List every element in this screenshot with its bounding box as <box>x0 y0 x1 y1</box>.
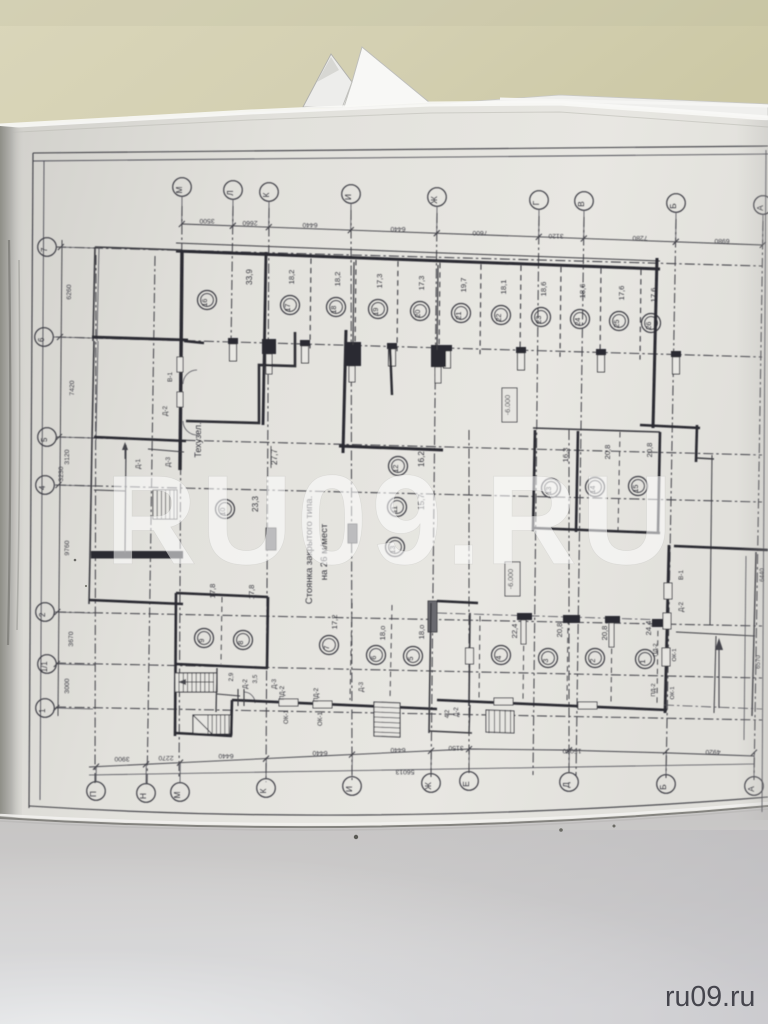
svg-text:Д-2: Д-2 <box>162 406 169 416</box>
svg-text:17,6: 17,6 <box>617 286 626 301</box>
svg-text:Ж: Ж <box>424 782 433 790</box>
svg-text:17: 17 <box>283 304 292 312</box>
svg-text:Б: Б <box>669 203 678 208</box>
svg-text:6440: 6440 <box>302 221 317 228</box>
svg-text:2: 2 <box>588 659 597 663</box>
svg-text:4: 4 <box>494 656 503 660</box>
svg-text:6440: 6440 <box>390 746 405 753</box>
svg-text:9760: 9760 <box>64 540 71 555</box>
svg-text:Д-2: Д-2 <box>242 679 249 689</box>
svg-text:ОК-1: ОК-1 <box>317 711 324 725</box>
svg-text:5: 5 <box>406 657 415 661</box>
svg-text:24,4: 24,4 <box>644 621 653 636</box>
svg-text:18,о: 18,о <box>417 625 426 640</box>
svg-text:17,3: 17,3 <box>375 274 384 289</box>
svg-text:21: 21 <box>454 312 463 320</box>
svg-text:ПД-2: ПД-2 <box>279 685 286 700</box>
svg-text:18,о: 18,о <box>378 626 387 641</box>
svg-text:Н: Н <box>139 793 148 799</box>
svg-text:3900: 3900 <box>114 755 129 762</box>
svg-text:Д: Д <box>562 782 571 788</box>
svg-text:3,5: 3,5 <box>252 674 259 683</box>
svg-text:20: 20 <box>413 310 422 318</box>
svg-text:18: 18 <box>329 306 338 314</box>
svg-text:25: 25 <box>612 320 621 328</box>
svg-text:6260: 6260 <box>66 284 73 299</box>
svg-text:18,2: 18,2 <box>333 272 342 287</box>
svg-text:7600: 7600 <box>472 229 487 236</box>
svg-text:20,8: 20,8 <box>555 623 564 638</box>
svg-text:18,1: 18,1 <box>499 280 508 295</box>
svg-text:ПД-2: ПД-2 <box>313 687 320 702</box>
svg-text:М: М <box>173 791 182 798</box>
svg-text:2,9: 2,9 <box>228 672 235 681</box>
svg-text:В-1: В-1 <box>167 372 174 382</box>
svg-text:5: 5 <box>40 437 49 442</box>
svg-text:18,6: 18,6 <box>539 282 548 297</box>
svg-text:1: 1 <box>38 709 47 713</box>
svg-text:7280: 7280 <box>632 234 647 241</box>
svg-text:2660: 2660 <box>242 219 257 226</box>
svg-text:ПД-2: ПД-2 <box>651 683 657 696</box>
svg-text:3000: 3000 <box>64 678 71 693</box>
svg-text:22: 22 <box>494 314 503 322</box>
svg-text:3120: 3120 <box>548 232 563 239</box>
svg-text:К: К <box>262 192 271 197</box>
svg-text:7420: 7420 <box>69 380 76 395</box>
svg-text:6440: 6440 <box>218 752 233 759</box>
svg-text:Д-2: Д-2 <box>678 602 685 612</box>
svg-text:3: 3 <box>541 659 550 663</box>
svg-text:24: 24 <box>573 318 582 326</box>
svg-text:3500: 3500 <box>199 217 214 224</box>
svg-text:RU09.RU: RU09.RU <box>105 449 676 591</box>
svg-text:19,7: 19,7 <box>459 278 468 293</box>
svg-text:9: 9 <box>197 639 206 643</box>
svg-text:Е: Е <box>462 781 471 787</box>
svg-text:И: И <box>345 786 354 792</box>
svg-text:2: 2 <box>38 613 47 617</box>
svg-text:7: 7 <box>322 646 331 650</box>
svg-text:6440: 6440 <box>312 749 327 756</box>
svg-text:2270: 2270 <box>158 754 173 761</box>
svg-text:И: И <box>344 194 353 200</box>
svg-text:4: 4 <box>38 485 47 490</box>
svg-text:К: К <box>259 788 268 793</box>
svg-text:Д-3: Д-3 <box>358 682 365 692</box>
svg-text:16: 16 <box>200 299 209 307</box>
svg-text:Г: Г <box>532 200 541 205</box>
svg-text:ПД-2: ПД-2 <box>653 643 659 656</box>
svg-text:В-1: В-1 <box>678 570 685 580</box>
svg-text:1: 1 <box>638 660 647 664</box>
svg-text:3150: 3150 <box>448 744 463 751</box>
svg-text:17,3: 17,3 <box>417 276 426 291</box>
svg-text:7: 7 <box>40 248 49 252</box>
svg-text:ОК-1: ОК-1 <box>672 648 678 661</box>
svg-text:26: 26 <box>644 322 653 330</box>
svg-text:М: М <box>175 186 184 193</box>
svg-text:4920: 4920 <box>705 748 720 755</box>
svg-text:3230: 3230 <box>58 466 65 481</box>
svg-text:Д-2: Д-2 <box>454 707 460 717</box>
svg-text:19: 19 <box>371 308 380 316</box>
svg-text:20,8: 20,8 <box>600 626 609 641</box>
svg-text:17,2: 17,2 <box>330 615 339 630</box>
svg-text:Ж: Ж <box>430 196 439 204</box>
svg-text:-6.000: -6.000 <box>503 395 512 415</box>
svg-text:В: В <box>577 201 586 207</box>
svg-text:33,9: 33,9 <box>245 269 254 285</box>
svg-text:4,2: 4,2 <box>445 709 451 718</box>
svg-text:П: П <box>89 791 98 797</box>
svg-text:18,6: 18,6 <box>578 284 587 299</box>
svg-text:6: 6 <box>369 656 378 660</box>
svg-text:1/1: 1/1 <box>40 661 49 672</box>
svg-text:22,4: 22,4 <box>510 624 519 639</box>
svg-text:6: 6 <box>37 338 46 342</box>
svg-text:56013: 56013 <box>395 768 414 775</box>
svg-text:ОК-1: ОК-1 <box>670 686 676 699</box>
svg-text:ОК-1: ОК-1 <box>283 709 290 723</box>
svg-text:3120: 3120 <box>64 449 71 464</box>
svg-text:Б: Б <box>659 784 668 789</box>
svg-text:8: 8 <box>236 641 245 645</box>
svg-text:18,2: 18,2 <box>287 270 296 285</box>
svg-text:3670: 3670 <box>68 631 75 646</box>
svg-text:Д-3: Д-3 <box>271 679 278 689</box>
svg-text:Л: Л <box>226 190 235 195</box>
svg-text:ru09.ru: ru09.ru <box>665 981 755 1013</box>
svg-text:6440: 6440 <box>390 225 405 232</box>
svg-text:15080: 15080 <box>562 747 581 754</box>
svg-text:6980: 6980 <box>714 237 729 244</box>
svg-text:23: 23 <box>534 316 543 324</box>
